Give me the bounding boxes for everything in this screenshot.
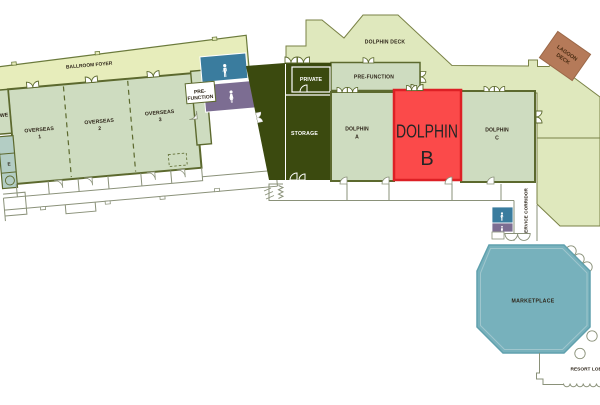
svg-text:DOLPHIN: DOLPHIN: [345, 127, 369, 133]
svg-text:PRIVATE: PRIVATE: [300, 77, 323, 83]
svg-text:SERVICE CORRIDOR: SERVICE CORRIDOR: [524, 187, 529, 236]
svg-text:A: A: [355, 135, 359, 141]
svg-text:DOLPHIN DECK: DOLPHIN DECK: [365, 40, 406, 46]
svg-text:STORAGE: STORAGE: [291, 131, 318, 137]
svg-text:DOLPHIN: DOLPHIN: [485, 128, 509, 134]
svg-text:RESORT LOBBY: RESORT LOBBY: [571, 367, 600, 373]
svg-text:B: B: [420, 148, 433, 170]
svg-text:C: C: [495, 136, 499, 142]
svg-text:DOLPHIN: DOLPHIN: [396, 121, 458, 142]
svg-text:WE: WE: [0, 112, 9, 119]
svg-text:MARKETPLACE: MARKETPLACE: [511, 299, 554, 305]
svg-text:PRE-FUNCTION: PRE-FUNCTION: [354, 75, 394, 81]
